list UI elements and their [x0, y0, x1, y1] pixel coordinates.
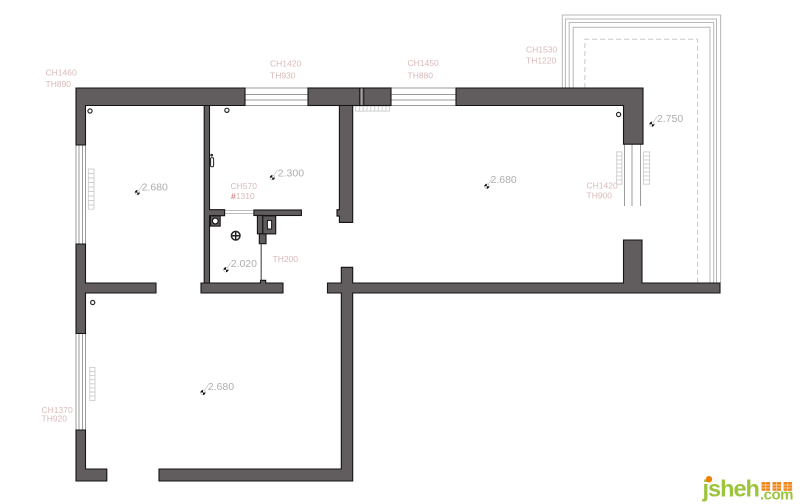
- svg-text:CH570: CH570: [231, 181, 258, 191]
- svg-text:CH1420: CH1420: [587, 181, 618, 191]
- svg-text:TH920: TH920: [42, 414, 68, 424]
- svg-text:TH880: TH880: [408, 70, 434, 80]
- svg-text:CH1450: CH1450: [408, 58, 439, 68]
- svg-text:CH1530: CH1530: [526, 45, 557, 55]
- svg-text:TH930: TH930: [270, 70, 296, 80]
- svg-text:TH1220: TH1220: [526, 56, 557, 66]
- svg-text:2.020: 2.020: [231, 258, 257, 270]
- svg-text:.com: .com: [760, 487, 793, 504]
- svg-text:CH1420: CH1420: [270, 59, 301, 69]
- svg-text:TH890: TH890: [46, 79, 72, 89]
- svg-text:2.750: 2.750: [657, 113, 683, 125]
- svg-text:2.300: 2.300: [278, 168, 304, 180]
- svg-text:2.680: 2.680: [491, 174, 517, 186]
- svg-text:#1310: #1310: [231, 191, 255, 201]
- svg-text:2.680: 2.680: [142, 181, 168, 193]
- svg-text:CH1460: CH1460: [46, 68, 77, 78]
- svg-text:TH900: TH900: [587, 191, 613, 201]
- svg-text:2.680: 2.680: [208, 381, 234, 393]
- svg-text:TH200: TH200: [273, 254, 299, 264]
